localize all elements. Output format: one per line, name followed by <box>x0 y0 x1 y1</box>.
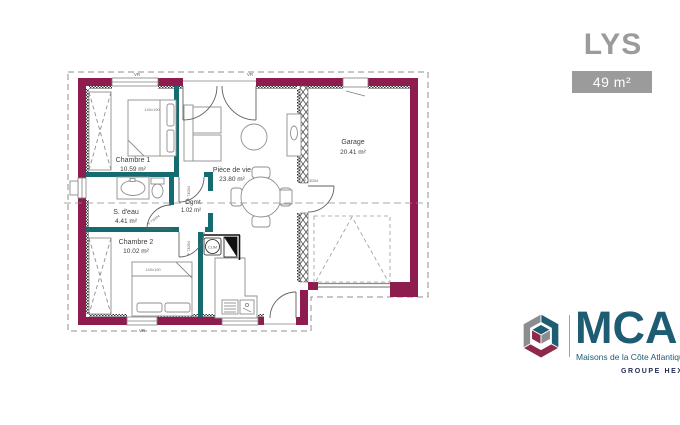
label-piece-de-vie-name: Pièce de vie <box>213 167 251 174</box>
clim-label: CLIM <box>208 246 217 250</box>
label-garage-area: 20.41 m² <box>340 149 366 156</box>
label-chambre2-area: 10.02 m² <box>123 248 149 255</box>
logo-group-label: GROUPE HEXAOM <box>621 368 680 375</box>
furniture-living <box>184 105 301 227</box>
model-title: LYS <box>572 28 654 62</box>
shutter-label-bottom: VR <box>139 328 146 333</box>
dining-table <box>241 177 281 217</box>
coffee-table <box>241 124 267 150</box>
garage-door <box>314 216 390 287</box>
bed-size-chambre1: 140x190 <box>144 107 160 112</box>
toilet <box>151 178 164 184</box>
kitchen-counter <box>215 258 257 318</box>
label-chambre1-name: Chambre 1 <box>116 157 151 164</box>
door-label-chambre1: P 73/204 <box>187 186 191 200</box>
bed-size-chambre2: 140x190 <box>145 267 161 272</box>
logo-tagline: Maisons de la Côte Atlantique <box>576 352 680 362</box>
mca-logo: MCA Maisons de la Côte Atlantique GROUPE… <box>520 311 680 391</box>
door-entry <box>270 292 296 318</box>
door-garage <box>308 186 334 212</box>
total-area-badge: 49 m² <box>572 71 652 93</box>
label-sdeau-name: S. d'eau <box>113 209 139 216</box>
french-door-right <box>222 86 256 120</box>
door-label-garage: P 73/204 <box>304 179 318 183</box>
label-chambre1-area: 10.59 m² <box>120 166 146 173</box>
label-chambre2-name: Chambre 2 <box>119 239 154 246</box>
page: Chambre 1 10.59 m² S. d'eau 4.41 m² Cham… <box>0 0 680 425</box>
label-piece-de-vie-area: 23.80 m² <box>219 176 245 183</box>
shutter-label-top2: VR <box>247 72 254 77</box>
mca-cube-icon <box>520 313 562 359</box>
shutter-label-top1: VR <box>134 72 141 77</box>
sofa <box>184 105 193 161</box>
label-sdeau-area: 4.41 m² <box>115 218 138 225</box>
label-degagement-area: 1.02 m² <box>181 208 201 214</box>
label-garage-name: Garage <box>341 139 364 146</box>
door-label-sdeau: P 73/204 <box>147 214 160 226</box>
logo-acronym: MCA <box>575 302 677 354</box>
door-label-chambre2: P 73/204 <box>187 241 191 255</box>
logo-divider <box>569 315 570 357</box>
furniture-sdeau <box>117 177 164 199</box>
